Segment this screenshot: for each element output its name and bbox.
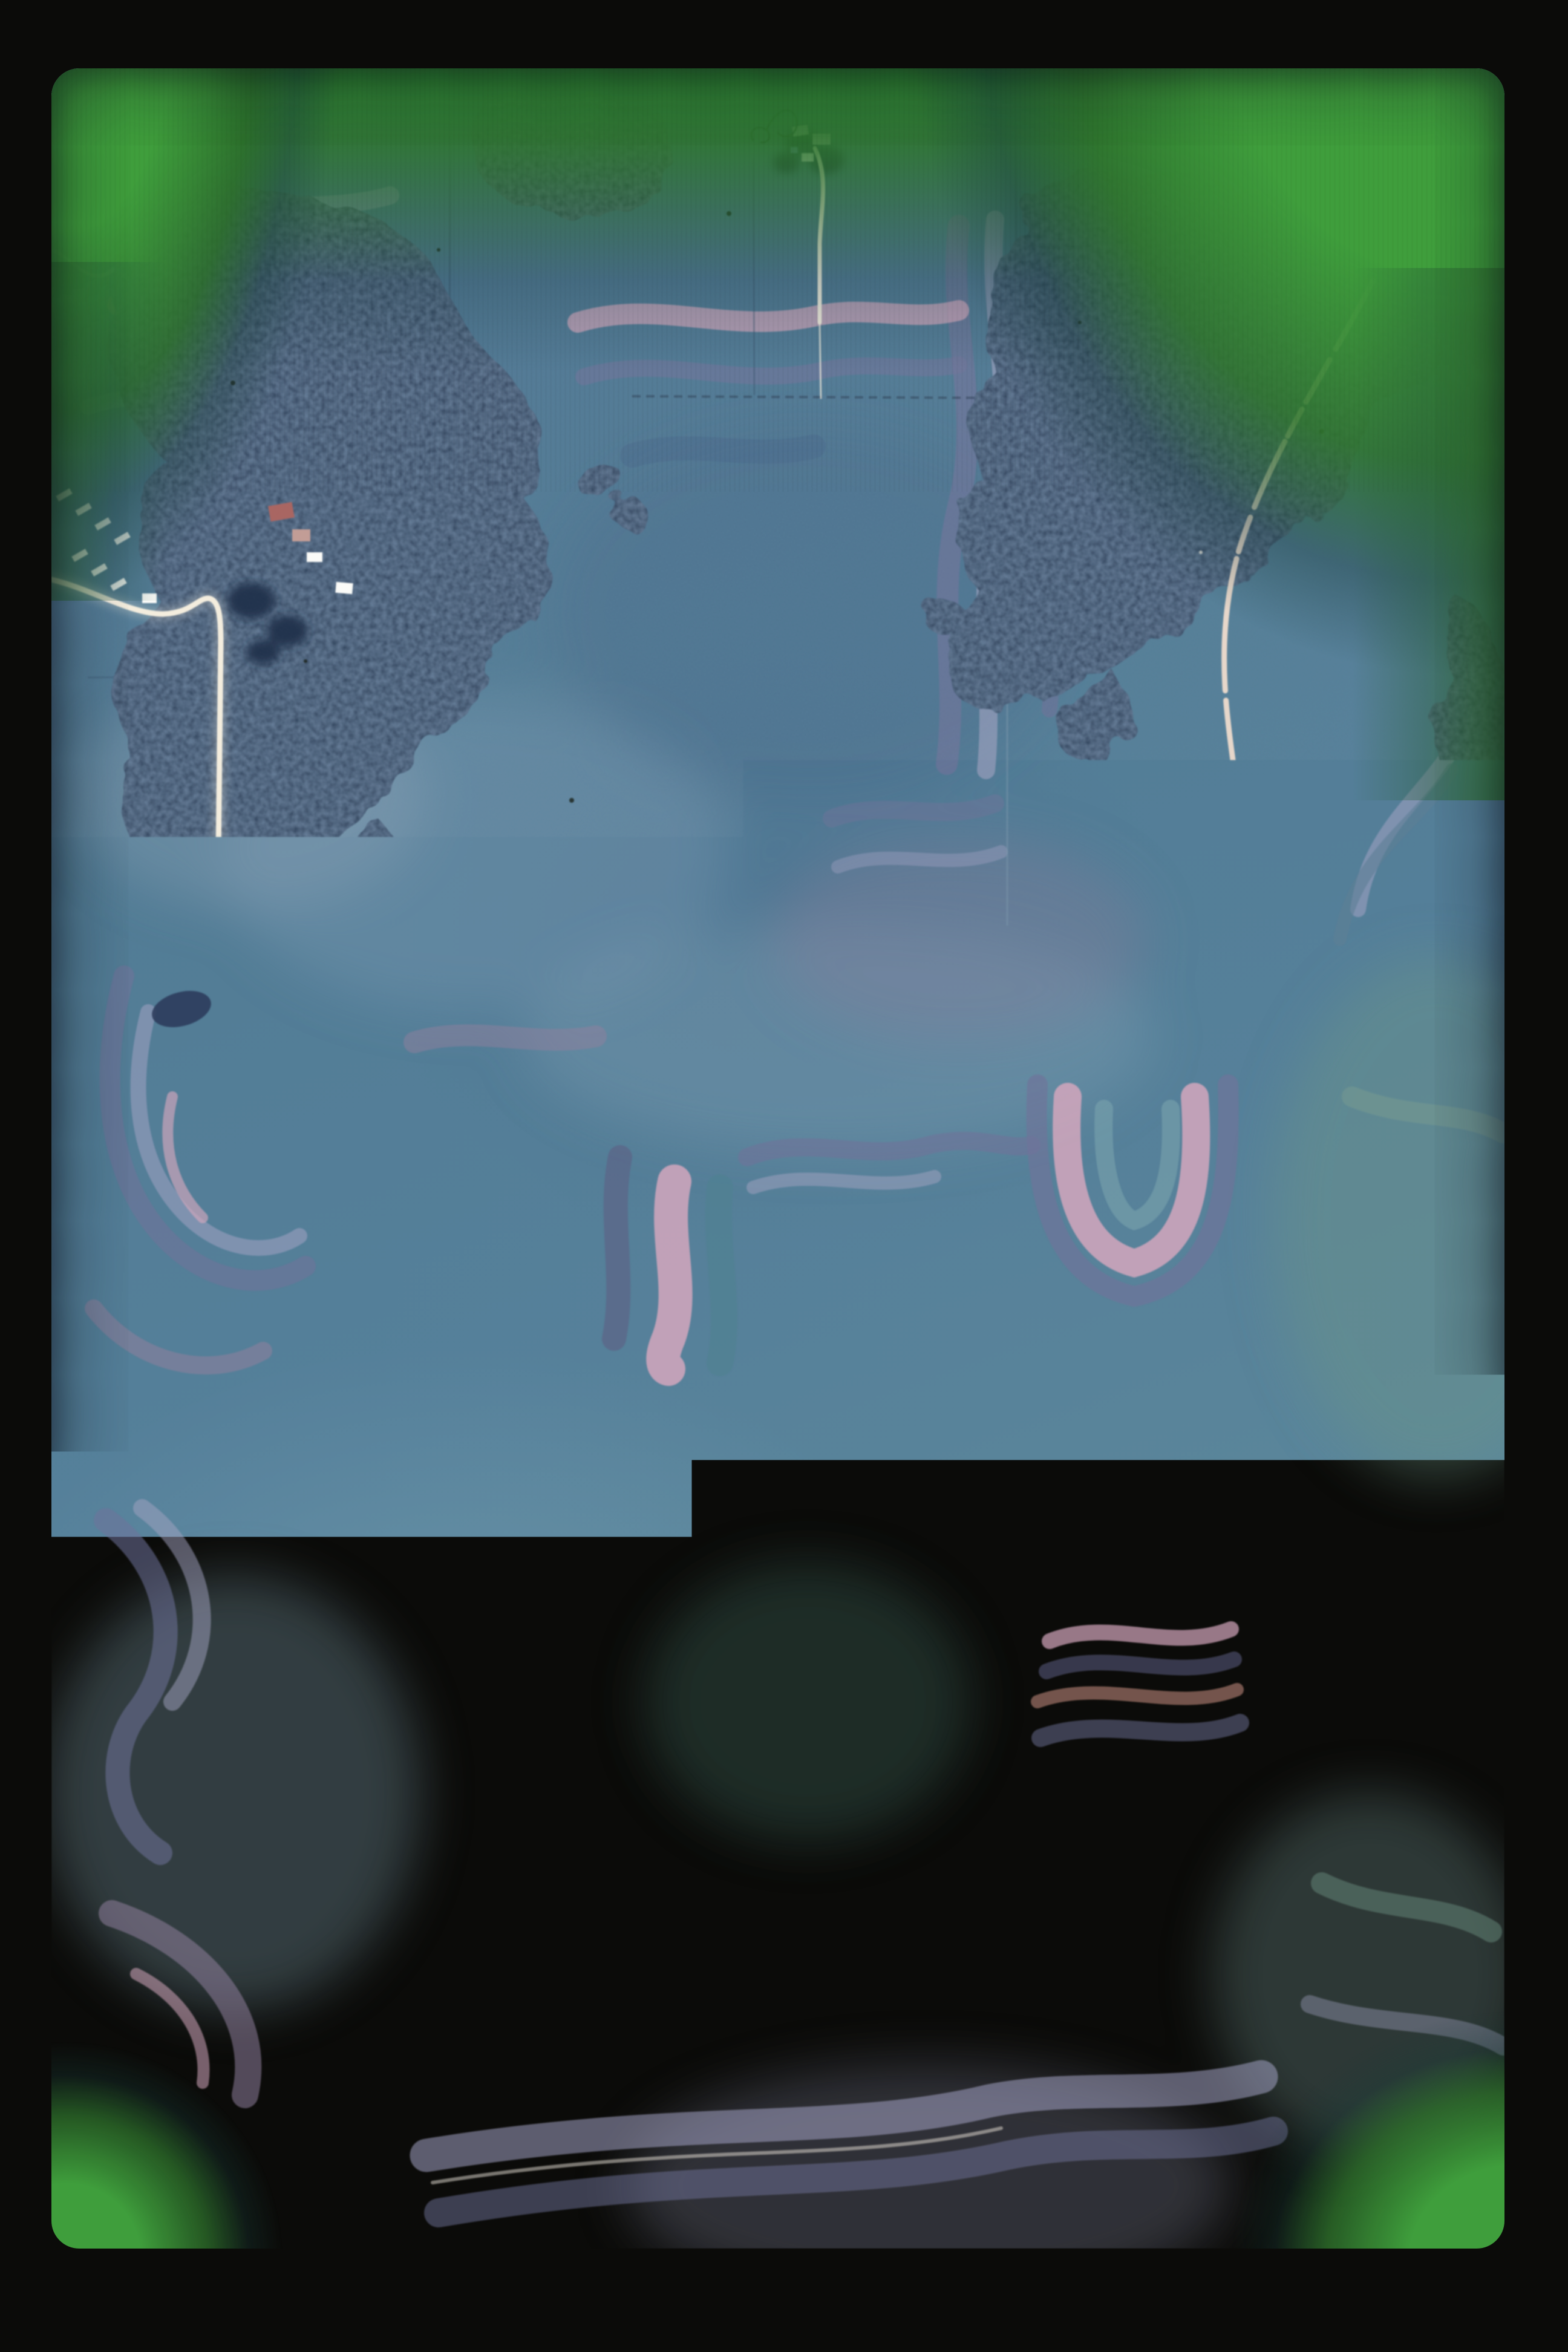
slide-scan-page: { "meta": { "title": "Scanned 35mm color… [0, 0, 1568, 2352]
film-frame [51, 68, 1504, 2249]
aerial-photo [51, 68, 1504, 2249]
film-grain [51, 68, 1504, 2249]
